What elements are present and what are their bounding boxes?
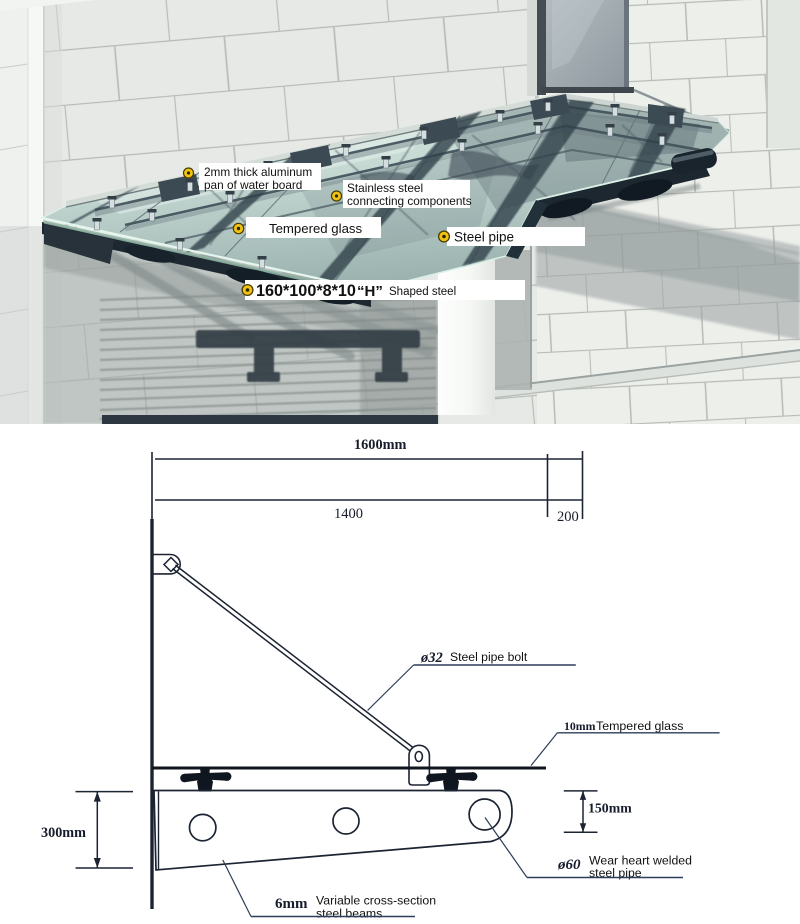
svg-text:150mm: 150mm — [588, 801, 632, 816]
svg-text:160*100*8*10: 160*100*8*10 — [256, 282, 356, 300]
svg-text:steel beams: steel beams — [316, 907, 382, 921]
svg-text:Steel pipe: Steel pipe — [454, 230, 514, 245]
svg-text:ø32: ø32 — [420, 650, 443, 666]
svg-text:Stainless steel: Stainless steel — [347, 181, 423, 195]
svg-text:200: 200 — [557, 509, 579, 525]
svg-text:300mm: 300mm — [41, 825, 86, 841]
svg-text:2mm thick aluminum: 2mm thick aluminum — [204, 165, 312, 179]
svg-text:Tempered glass: Tempered glass — [269, 221, 362, 236]
svg-text:10mm: 10mm — [564, 719, 596, 733]
svg-text:1600mm: 1600mm — [354, 437, 407, 453]
svg-text:Steel pipe bolt: Steel pipe bolt — [450, 650, 528, 664]
svg-text:1400: 1400 — [334, 506, 363, 522]
svg-text:Shaped steel: Shaped steel — [389, 286, 456, 298]
svg-text:connecting components: connecting components — [347, 194, 472, 208]
svg-text:ø60: ø60 — [557, 857, 581, 873]
svg-text:pan of water board: pan of water board — [204, 178, 302, 192]
svg-text:Variable cross-section: Variable cross-section — [316, 894, 436, 908]
svg-text:“H”: “H” — [357, 283, 383, 300]
svg-text:Tempered glass: Tempered glass — [596, 719, 683, 733]
svg-text:6mm: 6mm — [275, 896, 308, 912]
